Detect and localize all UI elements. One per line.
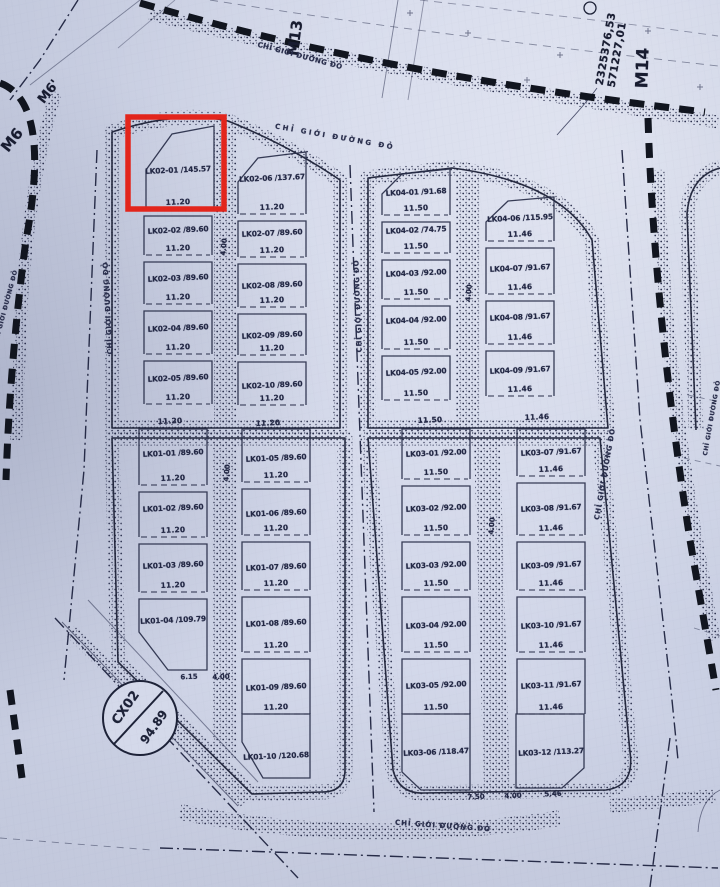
plot-frontage-dim: 11.50 [403,337,428,347]
plot-frontage-dim: 11.20 [165,197,190,207]
plot-label: LK02-04 /89.60 [147,322,208,334]
plot-frontage-dim: 11.20 [165,292,190,302]
plot-frontage-dim: 11.20 [263,523,288,533]
plot-label: LK01-03 /89.60 [142,559,203,571]
plot-label: LK01-10 /120.68 [243,750,309,762]
plot-frontage-dim: 11.46 [538,578,563,588]
green-space-id: CX02 [109,688,143,727]
green-space-area: 94.89 [137,707,170,746]
plot-label: LK04-04 /92.00 [385,314,446,326]
plot-frontage-dim: 11.46 [538,464,563,474]
plot-label: LK01-08 /89.60 [245,617,306,629]
plot-label: LK03-12 /113.27 [518,746,584,758]
plot-label: LK04-05 /92.00 [385,366,446,378]
plot-label: LK03-03 /92.00 [405,559,466,571]
plot-frontage-dim: 11.46 [538,640,563,650]
alley-width-dim: 4.00 [222,464,231,482]
plot-frontage-dim: 11.20 [259,295,284,305]
plot-frontage-dim: 11.20 [263,640,288,650]
plot-frontage-dim: 11.46 [507,229,532,239]
plot-label: LK03-02 /92.00 [405,502,466,514]
plot-frontage-dim: 11.50 [423,640,448,650]
marker-m6: M6 [0,124,27,155]
plot-label: LK02-08 /89.60 [241,279,302,291]
plot-label: LK04-02 /74.75 [385,224,446,236]
plot-label: LK02-09 /89.60 [241,329,302,341]
plot-label: LK03-01 /92.00 [405,447,466,459]
plot-frontage-dim: 11.50 [423,467,448,477]
plot-label: LK04-01 /91.68 [385,186,446,198]
plot-frontage-dim: 11.20 [165,392,190,402]
labels-layer: M6 M6' M13 M14 2325376,53 571227,01 CX02… [0,0,720,887]
plot-label: LK03-11 /91.67 [520,679,581,691]
plot-label: LK02-01 /145.57 [145,164,211,176]
plot-label: LK01-09 /89.60 [245,681,306,693]
plot-frontage-dim: 11.46 [538,702,563,712]
edge-dim: 5.46 [544,790,562,799]
edge-dim: 7.50 [467,793,485,802]
plot-label: LK03-08 /91.67 [520,502,581,514]
red-line-label: CHỈ GIỚI ĐƯỜNG ĐỎ [274,122,395,151]
plot-label: LK04-06 /115.95 [487,212,553,224]
plot-label: LK01-01 /89.60 [142,447,203,459]
plot-frontage-dim: 11.20 [259,202,284,212]
edge-dim: 4.00 [212,673,230,682]
red-line-label: CHỈ GIỚI ĐƯỜNG ĐỎ [395,819,492,834]
plot-label: LK01-02 /89.60 [142,502,203,514]
red-line-label: CHỈ GIỚI ĐƯỜNG ĐỎ [593,428,617,521]
plot-back-dim: 11.50 [417,415,442,425]
plot-frontage-dim: 11.50 [423,523,448,533]
plot-label: LK03-10 /91.67 [520,619,581,631]
red-line-label: CHỈ GIỚI ĐƯỜNG ĐỎ [352,259,363,352]
plot-frontage-dim: 11.20 [259,245,284,255]
plot-frontage-dim: 11.20 [160,580,185,590]
plot-frontage-dim: 11.46 [507,282,532,292]
plot-label: LK04-08 /91.67 [489,311,550,323]
plot-label: LK02-05 /89.60 [147,372,208,384]
plot-back-dim: 11.20 [255,418,280,428]
plot-frontage-dim: 11.50 [403,287,428,297]
plot-frontage-dim: 11.46 [507,332,532,342]
plot-frontage-dim: 11.20 [160,525,185,535]
plot-label: LK02-10 /89.60 [241,379,302,391]
plot-frontage-dim: 11.20 [165,243,190,253]
edge-dim: 6.15 [180,673,198,682]
plot-frontage-dim: 11.20 [263,470,288,480]
alley-width-dim: 4.00 [219,238,228,256]
red-line-label: CHỈ GIỚI ĐƯỜNG ĐỎ [702,380,720,456]
plot-frontage-dim: 11.20 [165,342,190,352]
alley-width-dim: 4.00 [487,517,496,535]
plot-label: LK04-07 /91.67 [489,262,550,274]
marker-m6-prime: M6' [35,77,63,107]
cadastral-map-scan: M6 M6' M13 M14 2325376,53 571227,01 CX02… [0,0,720,887]
marker-m14: M14 [632,47,653,88]
plot-label: LK04-03 /92.00 [385,267,446,279]
plot-label: LK02-02 /89.60 [147,224,208,236]
coordinate-label: 2325376,53 571227,01 [594,12,630,89]
plot-frontage-dim: 11.20 [263,702,288,712]
plot-label: LK04-09 /91.67 [489,364,550,376]
plot-label: LK03-07 /91.67 [520,446,581,458]
plot-label: LK01-06 /89.60 [245,507,306,519]
plot-label: LK03-06 /118.47 [403,746,469,758]
plot-frontage-dim: 11.50 [423,702,448,712]
edge-dim: 4.00 [504,792,522,801]
plot-label: LK03-09 /91.67 [520,559,581,571]
plot-label: LK02-07 /89.60 [241,227,302,239]
plot-frontage-dim: 11.50 [423,578,448,588]
plot-frontage-dim: 11.20 [259,393,284,403]
red-line-label: CHỈ GIỚI ĐƯỜNG ĐỎ [102,261,115,354]
plot-frontage-dim: 11.20 [160,473,185,483]
plot-label: LK01-04 /109.79 [140,614,206,626]
plot-frontage-dim: 11.20 [263,578,288,588]
plot-frontage-dim: 11.20 [259,343,284,353]
red-line-label: CHỈ GIỚI ĐƯỜNG ĐỎ [0,269,19,345]
plot-label: LK01-07 /89.60 [245,561,306,573]
plot-label: LK03-05 /92.00 [405,679,466,691]
plot-label: LK02-03 /89.60 [147,272,208,284]
plot-frontage-dim: 11.46 [507,384,532,394]
plot-label: LK02-06 /137.67 [239,172,305,184]
plot-frontage-dim: 11.50 [403,388,428,398]
plot-back-dim: 11.20 [157,416,182,426]
plot-label: LK01-05 /89.60 [245,452,306,464]
plot-label: LK03-04 /92.00 [405,619,466,631]
plot-frontage-dim: 11.46 [538,523,563,533]
plot-back-dim: 11.46 [524,412,549,422]
plot-frontage-dim: 11.50 [403,203,428,213]
alley-width-dim: 4.00 [464,284,473,302]
plot-frontage-dim: 11.50 [403,241,428,251]
